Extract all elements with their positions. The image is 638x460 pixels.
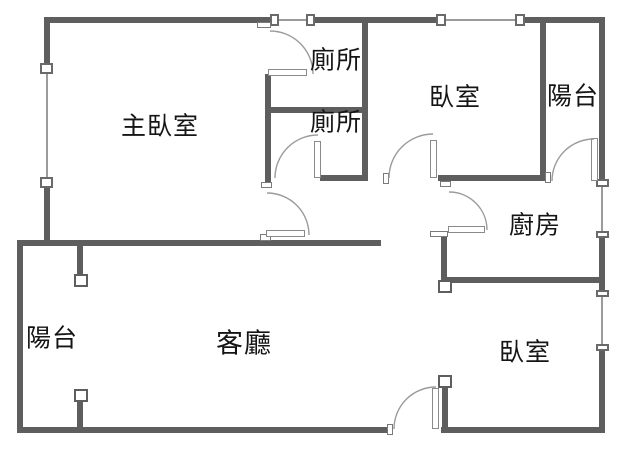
room-label-master-bedroom: 主臥室 <box>121 115 199 140</box>
door-arc-kitchen <box>449 192 487 230</box>
door-arc-balcony-upper <box>552 139 594 181</box>
room-label-bedroom-upper: 臥室 <box>429 86 481 111</box>
room-label-kitchen: 廚房 <box>509 214 561 239</box>
door-arc-bedroom-upper <box>389 134 433 178</box>
room-label-toilet-lower: 廁所 <box>310 111 362 136</box>
room-label-toilet-upper: 廁所 <box>310 49 362 74</box>
door-arc-master-bedroom <box>267 193 309 235</box>
room-label-bedroom-lower: 臥室 <box>499 341 551 366</box>
door-arc-toilet-upper <box>270 31 313 74</box>
room-label-balcony-upper: 陽台 <box>547 85 599 110</box>
room-label-balcony-lower: 陽台 <box>26 327 78 352</box>
floor-plan: 主臥室 廁所 廁所 臥室 陽台 廚房 客廳 陽台 臥室 <box>0 0 638 460</box>
door-arc-entrance <box>394 387 436 429</box>
door-arc-toilet-lower <box>275 135 318 178</box>
room-label-living-room: 客廳 <box>216 331 272 358</box>
